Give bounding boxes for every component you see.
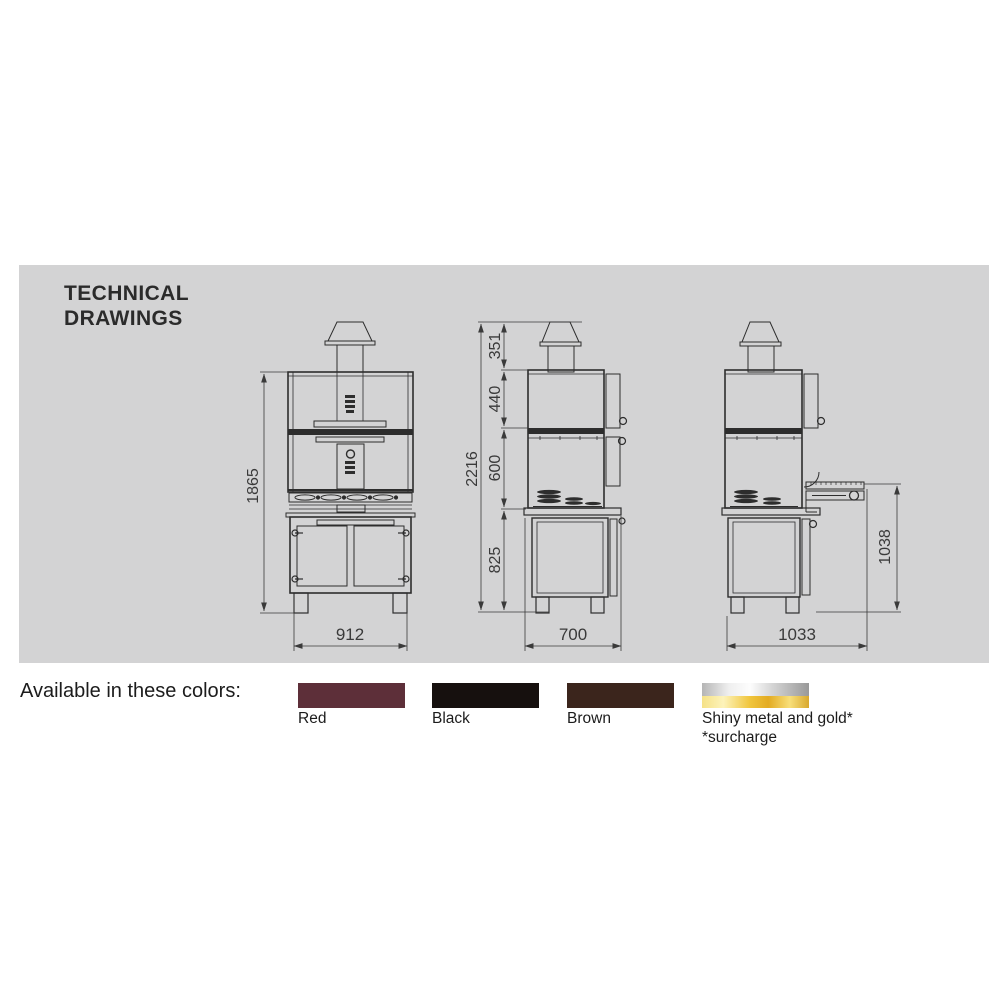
leg: [786, 597, 799, 613]
dim-label-351: 351: [487, 333, 504, 360]
technical-drawings: 1865 912: [0, 0, 1000, 663]
surcharge-note: *surcharge: [702, 729, 777, 747]
burner-strip: [289, 493, 412, 502]
chimney-cap: [328, 322, 372, 341]
dim-label-height-1865: 1865: [245, 468, 262, 504]
brand-logo-mark: [345, 395, 355, 413]
hinges: [292, 530, 409, 582]
worktop: [524, 508, 621, 515]
worktop: [722, 508, 820, 515]
color-label-red: Red: [298, 709, 326, 729]
cabinet-door-right: [354, 526, 404, 586]
open-door-knob: [850, 491, 859, 500]
leg: [393, 593, 407, 613]
cabinet-side-door: [610, 519, 617, 596]
side-view-open-drawing: [722, 322, 901, 651]
color-label-brown: Brown: [567, 709, 611, 729]
leg: [536, 597, 549, 613]
dim-label-600: 600: [487, 455, 504, 482]
dim-label-width-912: 912: [336, 625, 364, 644]
color-label-shiny-metal-gold: Shiny metal and gold*: [702, 709, 853, 729]
chimney-flue: [748, 346, 774, 372]
dim-label-depth-1033: 1033: [778, 625, 816, 644]
cabinet-side-door: [802, 519, 810, 595]
door-knob: [810, 521, 817, 528]
oven-handle-lower: [316, 437, 384, 442]
chimney-flue: [337, 345, 363, 372]
color-swatch-brown: [567, 683, 674, 708]
chimney-flue: [548, 346, 574, 372]
brand-logo-mark-2: [345, 461, 355, 474]
side-door-upper: [606, 374, 620, 428]
metal-gradient-half: [702, 683, 809, 696]
front-view-drawing: [260, 322, 415, 651]
ash-drawer: [337, 505, 365, 512]
divider-band: [288, 429, 413, 435]
color-swatch-black: [432, 683, 539, 708]
available-colors-heading: Available in these colors:: [20, 680, 241, 703]
dim-label-440: 440: [487, 386, 504, 413]
dim-label-worktop-1038: 1038: [877, 529, 894, 565]
divider-band: [528, 428, 604, 434]
cabinet: [728, 518, 800, 597]
gold-gradient-half: [702, 696, 809, 709]
divider-band: [725, 428, 802, 434]
door-knob: [619, 518, 625, 524]
color-label-black: Black: [432, 709, 470, 729]
color-swatch-shiny-metal-gold: [702, 683, 809, 708]
side-view-drawing: [478, 322, 627, 651]
cabinet-handle: [317, 520, 394, 525]
dim-label-825: 825: [487, 547, 504, 574]
dim-label-depth-700: 700: [559, 625, 587, 644]
chimney-cap: [742, 322, 779, 342]
dim-label-total-2216: 2216: [464, 451, 481, 487]
leg: [591, 597, 604, 613]
side-door-lower: [606, 437, 620, 486]
door-knob: [620, 418, 627, 425]
cabinet: [290, 517, 411, 593]
oven-knob: [347, 450, 355, 458]
cabinet-door-left: [297, 526, 347, 586]
plate-stacks: [537, 490, 601, 505]
plate-stacks: [734, 490, 781, 505]
cabinet: [532, 518, 608, 597]
chimney-cap: [542, 322, 579, 342]
leg: [731, 597, 744, 613]
chimney-cap-base: [325, 341, 375, 345]
side-door-upper: [804, 374, 818, 428]
oven-handle-upper: [314, 421, 386, 427]
door-knob: [818, 418, 825, 425]
color-swatch-red: [298, 683, 405, 708]
shelf-bracket: [806, 500, 817, 512]
leg: [294, 593, 308, 613]
